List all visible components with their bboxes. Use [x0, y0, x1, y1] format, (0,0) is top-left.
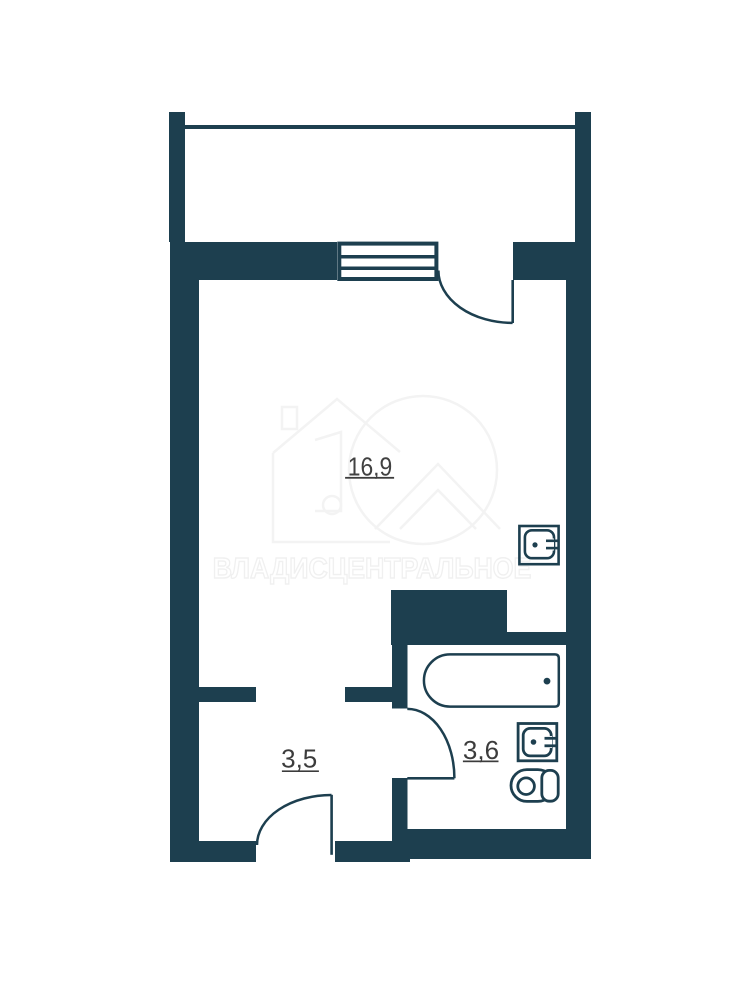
svg-text:ВЛАДИСЦЕНТРАЛЬНОЕ: ВЛАДИСЦЕНТРАЛЬНОЕ [213, 552, 532, 584]
svg-text:3,6: 3,6 [463, 735, 499, 765]
svg-text:3,5: 3,5 [281, 743, 317, 773]
